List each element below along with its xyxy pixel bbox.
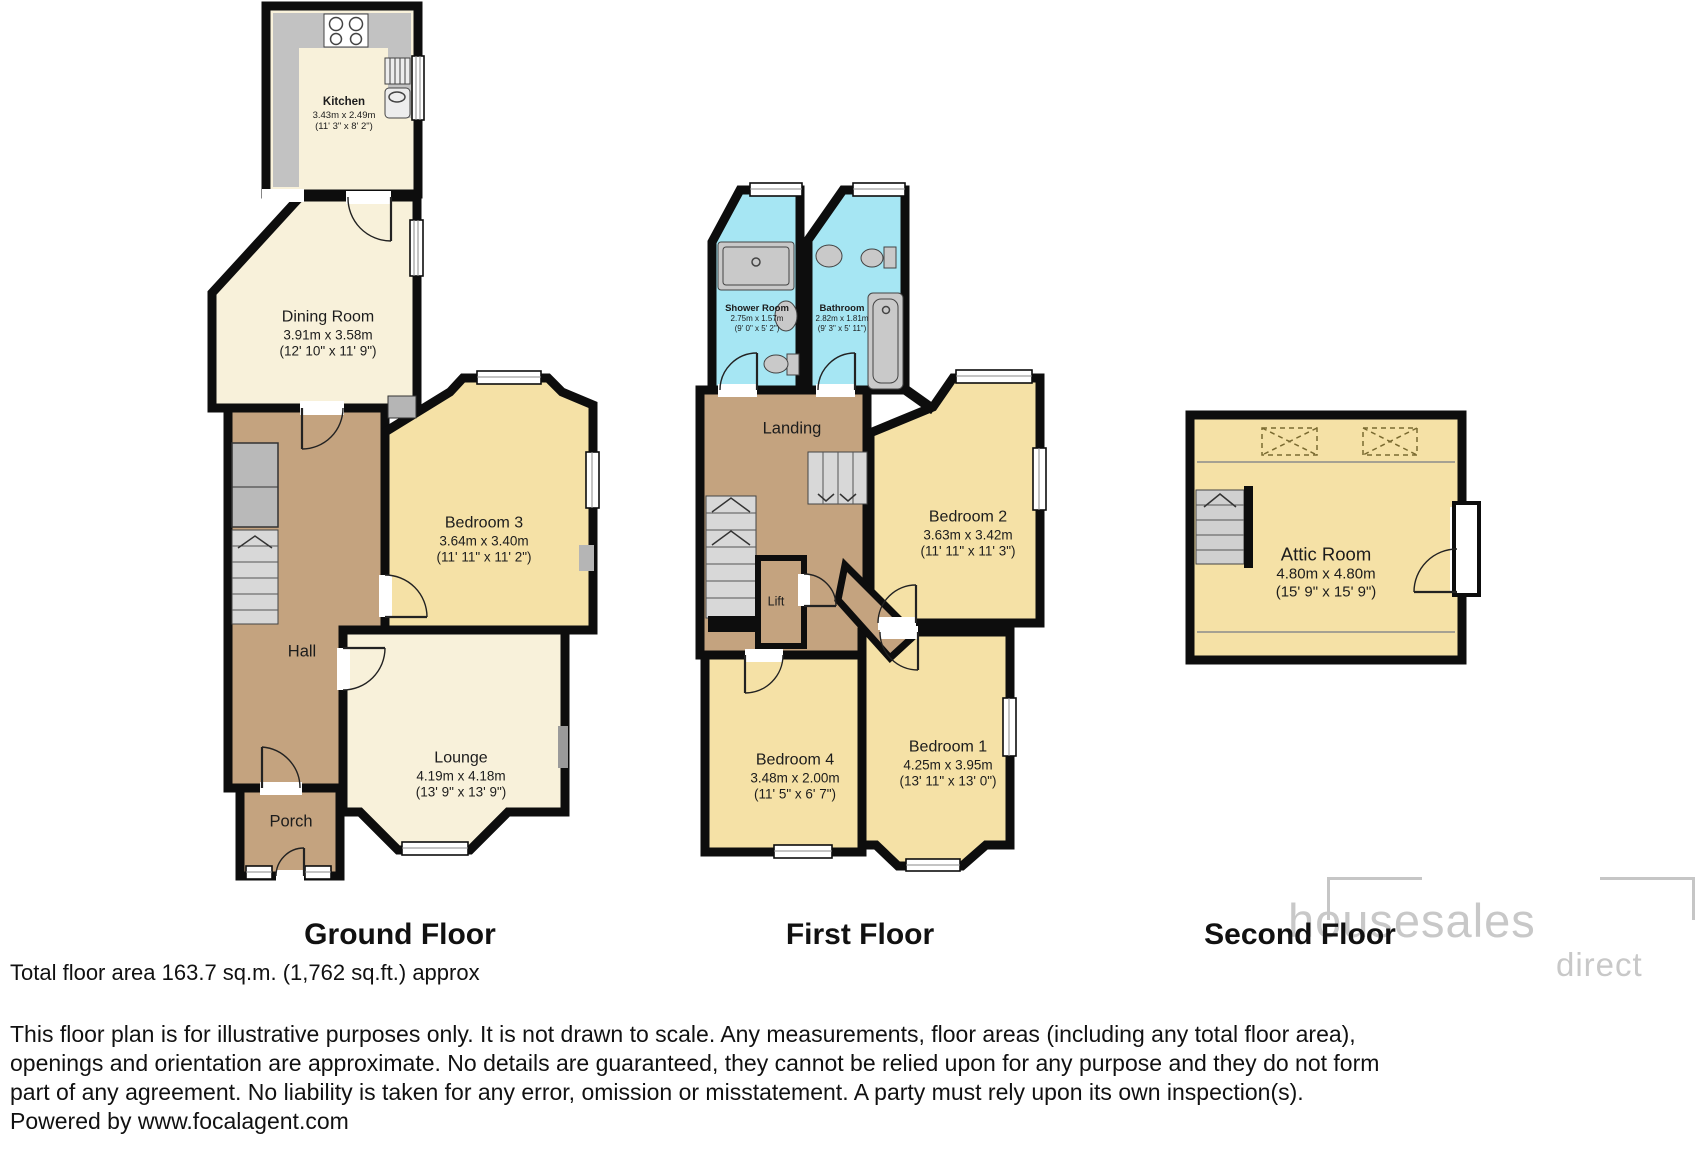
room-dims-metric: 3.63m x 3.42m (920, 528, 1015, 544)
bedroom3-side-window (586, 452, 599, 508)
room-name: Porch (269, 812, 312, 831)
staircase-attic (1196, 486, 1253, 568)
room-dims-metric: 2.82m x 1.81m (816, 314, 869, 323)
porch-label: Porch (269, 812, 312, 831)
room-name: Landing (763, 419, 822, 438)
room-name: Bedroom 2 (920, 509, 1015, 528)
room-dims-metric: 3.43m x 2.49m (313, 110, 376, 121)
kitchen-label: Kitchen 3.43m x 2.49m (11' 3" x 8' 2") (313, 96, 376, 132)
room-dims-imperial: (11' 3" x 8' 2") (313, 121, 376, 132)
floor-title-second: Second Floor (1204, 918, 1396, 952)
room-dims-imperial: (11' 11" x 11' 2") (436, 549, 531, 565)
shower-wc-icon (764, 354, 799, 375)
room-dims-metric: 4.80m x 4.80m (1276, 565, 1377, 583)
dining-room-label: Dining Room 3.91m x 3.58m (12' 10" x 11'… (279, 309, 376, 360)
ground-floor-plan (212, 6, 599, 883)
bathroom-basin-icon (816, 245, 842, 267)
dining-window (410, 220, 423, 276)
shower-room-label: Shower Room 2.75m x 1.57m (9' 0" x 5' 2"… (725, 303, 789, 333)
hall-closet (232, 443, 278, 527)
shower-tray-icon (718, 242, 794, 290)
room-dims-metric: 3.91m x 3.58m (279, 328, 376, 344)
room-dims-imperial: (13' 11" x 13' 0") (899, 773, 996, 789)
room-dims-imperial: (11' 11" x 11' 3") (920, 543, 1015, 559)
bedroom2-bay-window (956, 370, 1032, 383)
bathroom-window (853, 183, 905, 196)
room-dims-imperial: (9' 3" x 5' 11") (816, 324, 869, 333)
logo-bracket-right-icon (1600, 877, 1695, 920)
chimney-breast (388, 396, 416, 418)
bedroom3-recess (579, 545, 594, 571)
floor-title-ground: Ground Floor (304, 918, 496, 952)
room-dining (212, 197, 417, 408)
wall-link (903, 388, 934, 410)
room-name: Lift (768, 595, 785, 610)
kitchen-appliance-icon (385, 58, 410, 118)
room-name: Bedroom 1 (899, 739, 996, 758)
wall-patch (262, 189, 304, 202)
porch-window-left (246, 866, 272, 879)
room-dims-metric: 3.64m x 3.40m (436, 534, 531, 550)
room-name: Bathroom (816, 303, 869, 314)
room-dims-imperial: (12' 10" x 11' 9") (279, 343, 376, 359)
shower-window (750, 183, 802, 196)
room-porch (240, 788, 340, 876)
room-name: Shower Room (725, 303, 789, 314)
room-name: Dining Room (279, 309, 376, 328)
bedroom1-label: Bedroom 1 4.25m x 3.95m (13' 11" x 13' 0… (899, 739, 996, 790)
hob-icon (324, 14, 368, 47)
lounge-bay-window (402, 842, 468, 855)
bedroom3-label: Bedroom 3 3.64m x 3.40m (11' 11" x 11' 2… (436, 515, 531, 566)
disclaimer-line: openings and orientation are approximate… (10, 1049, 1379, 1078)
floorplan-page: Kitchen 3.43m x 2.49m (11' 3" x 8' 2") D… (0, 0, 1696, 1152)
hall-label: Hall (288, 642, 316, 661)
room-name: Bedroom 3 (436, 515, 531, 534)
disclaimer: This floor plan is for illustrative purp… (10, 1020, 1379, 1136)
room-dims-imperial: (13' 9" x 13' 9") (416, 784, 507, 800)
room-dims-metric: 4.25m x 3.95m (899, 758, 996, 774)
bathroom-label: Bathroom 2.82m x 1.81m (9' 3" x 5' 11") (816, 303, 869, 333)
staircase-ground (232, 530, 278, 624)
room-name: Hall (288, 642, 316, 661)
room-dims-metric: 2.75m x 1.57m (725, 314, 789, 323)
bedroom2-side-window (1033, 448, 1046, 510)
room-dims-imperial: (15' 9" x 15' 9") (1276, 583, 1377, 601)
room-dims-metric: 4.19m x 4.18m (416, 769, 507, 785)
bathtub-icon (868, 293, 903, 389)
porch-window-right (305, 866, 331, 879)
second-floor-plan (1190, 415, 1479, 660)
room-bedroom2 (870, 378, 1040, 623)
bedroom4-label: Bedroom 4 3.48m x 2.00m (11' 5" x 6' 7") (750, 752, 839, 803)
disclaimer-line: part of any agreement. No liability is t… (10, 1078, 1379, 1107)
kitchen-window (412, 56, 424, 120)
bedroom1-side-window (1003, 698, 1016, 756)
staircase-up (808, 452, 867, 504)
room-dims-metric: 3.48m x 2.00m (750, 771, 839, 787)
room-name: Lounge (416, 750, 507, 769)
bathroom-wc-icon (861, 247, 896, 268)
room-name: Attic Room (1276, 543, 1377, 565)
lounge-label: Lounge 4.19m x 4.18m (13' 9" x 13' 9") (416, 750, 507, 801)
bedroom4-window (774, 845, 832, 858)
logo-suffix: direct (1556, 946, 1643, 984)
staircase-first (706, 496, 756, 632)
floor-title-first: First Floor (786, 918, 934, 952)
room-name: Kitchen (313, 96, 376, 110)
total-floor-area: Total floor area 163.7 sq.m. (1,762 sq.f… (10, 960, 480, 986)
disclaimer-line: This floor plan is for illustrative purp… (10, 1020, 1379, 1049)
bedroom1-bay-window (906, 859, 960, 871)
lounge-recess (558, 726, 568, 768)
landing-label: Landing (763, 419, 822, 438)
room-dims-imperial: (9' 0" x 5' 2") (725, 324, 789, 333)
attic-room-label: Attic Room 4.80m x 4.80m (15' 9" x 15' 9… (1276, 543, 1377, 600)
powered-by: Powered by www.focalagent.com (10, 1107, 1379, 1136)
bedroom3-bay-window (477, 371, 541, 384)
room-lounge (343, 630, 565, 850)
room-name: Bedroom 4 (750, 752, 839, 771)
room-dims-imperial: (11' 5" x 6' 7") (750, 786, 839, 802)
bedroom2-label: Bedroom 2 3.63m x 3.42m (11' 11" x 11' 3… (920, 509, 1015, 560)
lift-label: Lift (768, 595, 785, 610)
